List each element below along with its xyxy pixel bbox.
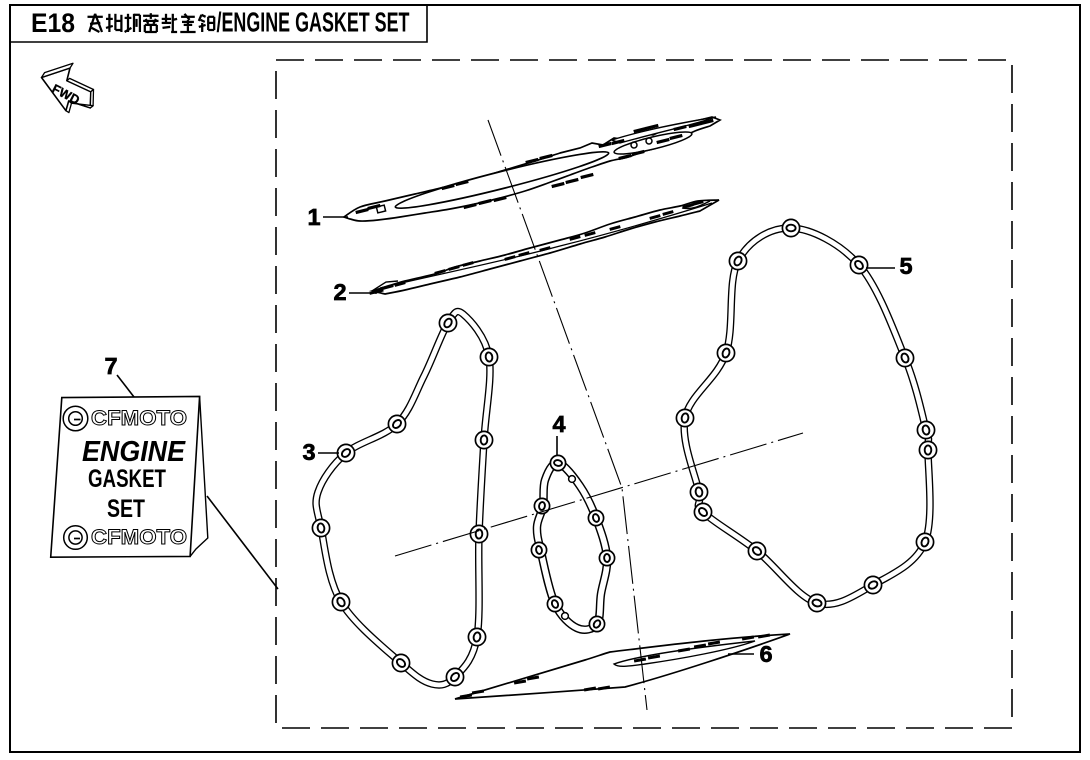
svg-text:6: 6	[759, 641, 772, 667]
svg-text:E18: E18	[31, 8, 75, 38]
svg-text:4: 4	[552, 411, 565, 437]
svg-text:2: 2	[333, 279, 346, 305]
svg-text:1: 1	[307, 204, 320, 230]
svg-text:5: 5	[899, 253, 912, 279]
svg-text:/ENGINE GASKET SET: /ENGINE GASKET SET	[217, 7, 410, 38]
svg-text:3: 3	[302, 439, 315, 465]
svg-text:GASKET: GASKET	[88, 465, 166, 493]
svg-text:CFMOTO: CFMOTO	[91, 526, 187, 549]
svg-text:ENGINE: ENGINE	[82, 436, 187, 468]
svg-text:SET: SET	[107, 495, 145, 523]
svg-text:CFMOTO: CFMOTO	[91, 407, 187, 430]
svg-text:7: 7	[104, 353, 117, 379]
